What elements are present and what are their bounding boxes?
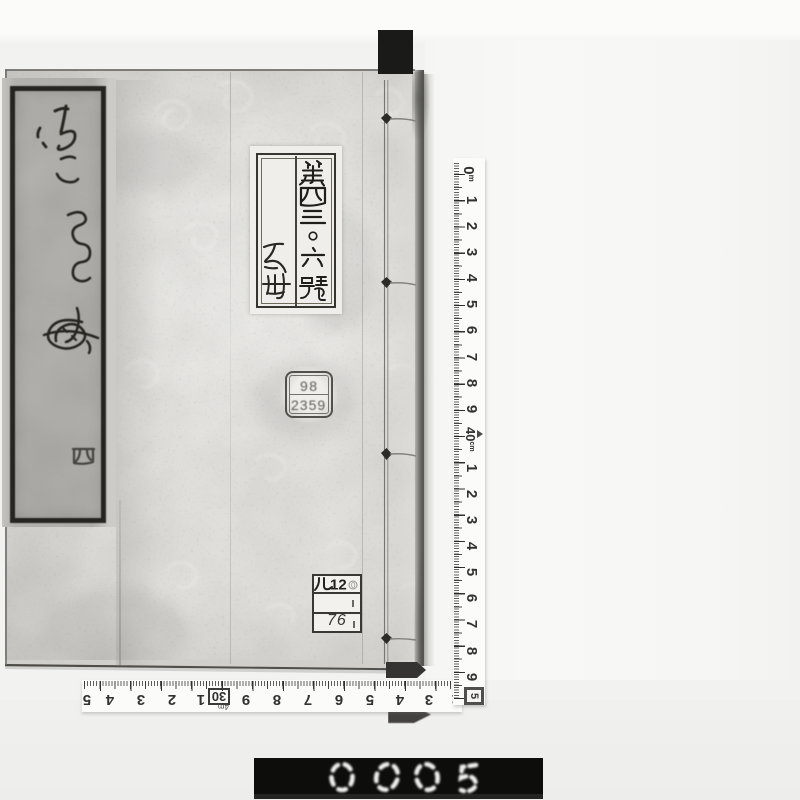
- svg-text:12: 12: [330, 577, 347, 593]
- svg-text:0: 0: [351, 581, 356, 590]
